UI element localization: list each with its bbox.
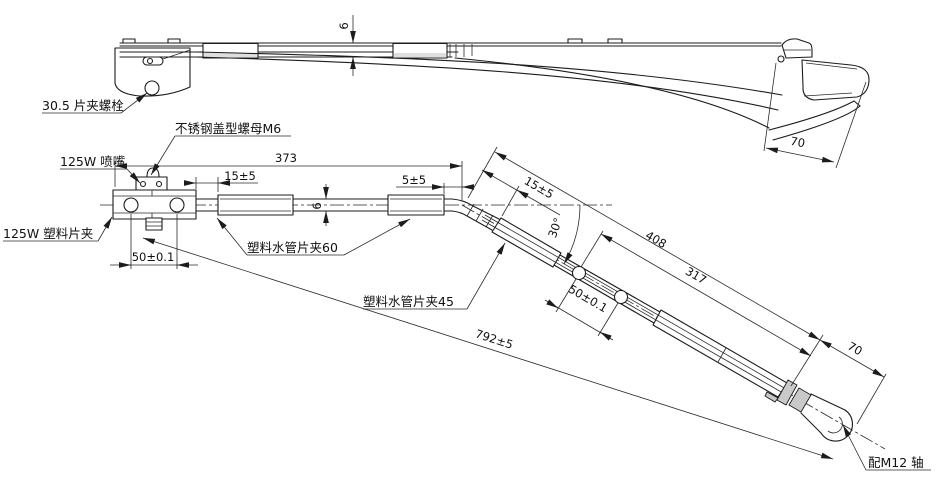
svg-text:125W 喷嘴: 125W 喷嘴 [60, 154, 126, 169]
dim-text-6-bottom: 6 [310, 202, 324, 209]
arm-tab [608, 39, 622, 43]
svg-text:配M12 轴: 配M12 轴 [868, 455, 924, 470]
head-tab [168, 39, 180, 43]
head-tab [123, 39, 135, 43]
head-nut [146, 218, 162, 230]
dim-text-70-top: 70 [789, 134, 806, 151]
svg-text:不锈钢盖型螺母M6: 不锈钢盖型螺母M6 [175, 121, 281, 136]
blade-clamp-head [115, 48, 190, 96]
pipe-clamp-60-a [218, 195, 293, 215]
dim-text-50-head: 50±0.1 [132, 250, 175, 264]
angled-hole-2 [615, 291, 628, 304]
dim-text-6-top: 6 [337, 22, 351, 29]
wiper-arm-drawing: 6 70 30.5 片夹螺栓 [0, 0, 946, 483]
drawing-canvas: 6 70 30.5 片夹螺栓 [0, 0, 946, 483]
dim-text-373: 373 [275, 151, 297, 165]
angled-hole-1 [573, 267, 586, 280]
arm-tab [568, 39, 582, 43]
svg-text:30.5 片夹螺栓: 30.5 片夹螺栓 [42, 98, 124, 113]
svg-text:125W 塑料片夹: 125W 塑料片夹 [3, 226, 93, 241]
svg-text:塑料水管片夹60: 塑料水管片夹60 [247, 240, 338, 255]
dim-text-5: 5±5 [402, 173, 426, 187]
dim-text-15-straight: 15±5 [224, 169, 256, 183]
pipe-clamp-60-b [388, 195, 444, 215]
svg-text:塑料水管片夹45: 塑料水管片夹45 [363, 294, 454, 309]
